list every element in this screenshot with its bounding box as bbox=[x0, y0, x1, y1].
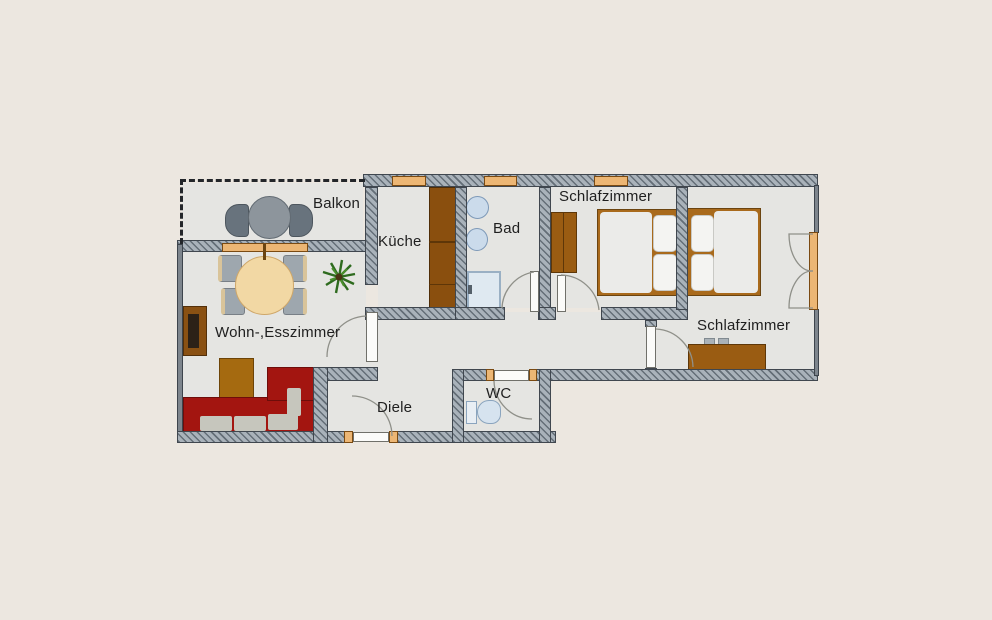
kitchen-cabinet-divider bbox=[429, 241, 457, 243]
living-window-mullion bbox=[263, 244, 266, 260]
wall-segment bbox=[455, 307, 505, 320]
wall-segment bbox=[365, 307, 458, 320]
bed-mattress bbox=[600, 212, 652, 293]
living-hall-door bbox=[366, 312, 378, 362]
wall-segment bbox=[601, 307, 688, 320]
room-label-schlafzimmer1: Schlafzimmer bbox=[559, 189, 652, 205]
balcony-dashed-edge bbox=[180, 179, 183, 244]
bed-pillow bbox=[691, 254, 714, 291]
bed-pillow bbox=[653, 254, 677, 291]
coffee-table bbox=[219, 358, 254, 399]
entry-door-post bbox=[344, 431, 353, 443]
wall-segment bbox=[397, 431, 556, 443]
wall-segment bbox=[313, 367, 328, 443]
hall-corridor-floor bbox=[458, 312, 658, 370]
wall-segment bbox=[452, 369, 464, 443]
kitchen-cabinet-run bbox=[429, 187, 457, 308]
wardrobe-divider bbox=[563, 212, 564, 273]
balcony-chair-right bbox=[289, 204, 313, 237]
wall-segment bbox=[455, 187, 467, 320]
kitchen-window bbox=[392, 176, 426, 186]
wall-segment bbox=[814, 309, 819, 376]
sideboard bbox=[688, 344, 766, 371]
tv-screen bbox=[188, 314, 199, 348]
sofa-cushion bbox=[234, 416, 266, 431]
room-label-wohnesszimmer: Wohn-,Esszimmer bbox=[215, 325, 340, 341]
bed-mattress bbox=[714, 211, 758, 293]
sofa-cushion bbox=[200, 416, 232, 431]
wall-segment bbox=[539, 187, 551, 320]
kitchen-cabinet-divider bbox=[429, 284, 457, 285]
bedroom1-door bbox=[557, 275, 566, 312]
bath-sink bbox=[466, 228, 488, 251]
sofa-cushion bbox=[268, 414, 298, 430]
wall-segment bbox=[539, 307, 556, 320]
shower-fixture bbox=[468, 285, 472, 294]
room-label-diele: Diele bbox=[377, 400, 412, 416]
bedroom2-door bbox=[646, 326, 656, 368]
floor-plan: Balkon Küche Bad Schlafzimmer Schlafzimm… bbox=[0, 0, 992, 620]
wardrobe bbox=[551, 212, 577, 273]
room-label-kueche: Küche bbox=[378, 234, 422, 250]
wall-segment bbox=[539, 369, 551, 443]
toilet-bowl bbox=[477, 400, 501, 424]
shower-tray bbox=[467, 271, 501, 311]
wall-segment bbox=[814, 185, 819, 233]
bedroom1-window bbox=[594, 176, 628, 186]
room-label-wc: WC bbox=[486, 386, 511, 402]
balcony-table bbox=[248, 196, 291, 239]
bath-door bbox=[530, 271, 539, 312]
room-label-bad: Bad bbox=[493, 221, 520, 237]
wc-door-post bbox=[529, 369, 537, 381]
bath-sink bbox=[466, 196, 489, 219]
wall-segment bbox=[363, 174, 818, 187]
bed-pillow bbox=[653, 215, 677, 252]
wall-segment bbox=[365, 187, 378, 285]
sofa-cushion bbox=[287, 388, 301, 416]
entry-door-post bbox=[389, 431, 398, 443]
bath-window bbox=[484, 176, 517, 186]
balcony-chair-left bbox=[225, 204, 249, 237]
room-label-balkon: Balkon bbox=[313, 196, 360, 212]
balcony-dashed-edge bbox=[180, 179, 365, 182]
wc-door-post bbox=[486, 369, 494, 381]
dining-table bbox=[235, 256, 294, 315]
room-label-schlafzimmer2: Schlafzimmer bbox=[697, 318, 790, 334]
toilet-cistern bbox=[466, 401, 477, 424]
bed-pillow bbox=[691, 215, 714, 252]
wc-door bbox=[494, 370, 529, 381]
wall-segment bbox=[676, 187, 688, 310]
entry-door bbox=[353, 432, 389, 442]
wall-segment bbox=[536, 369, 818, 381]
balcony-door-frame bbox=[809, 232, 818, 310]
wall-segment bbox=[177, 244, 183, 443]
